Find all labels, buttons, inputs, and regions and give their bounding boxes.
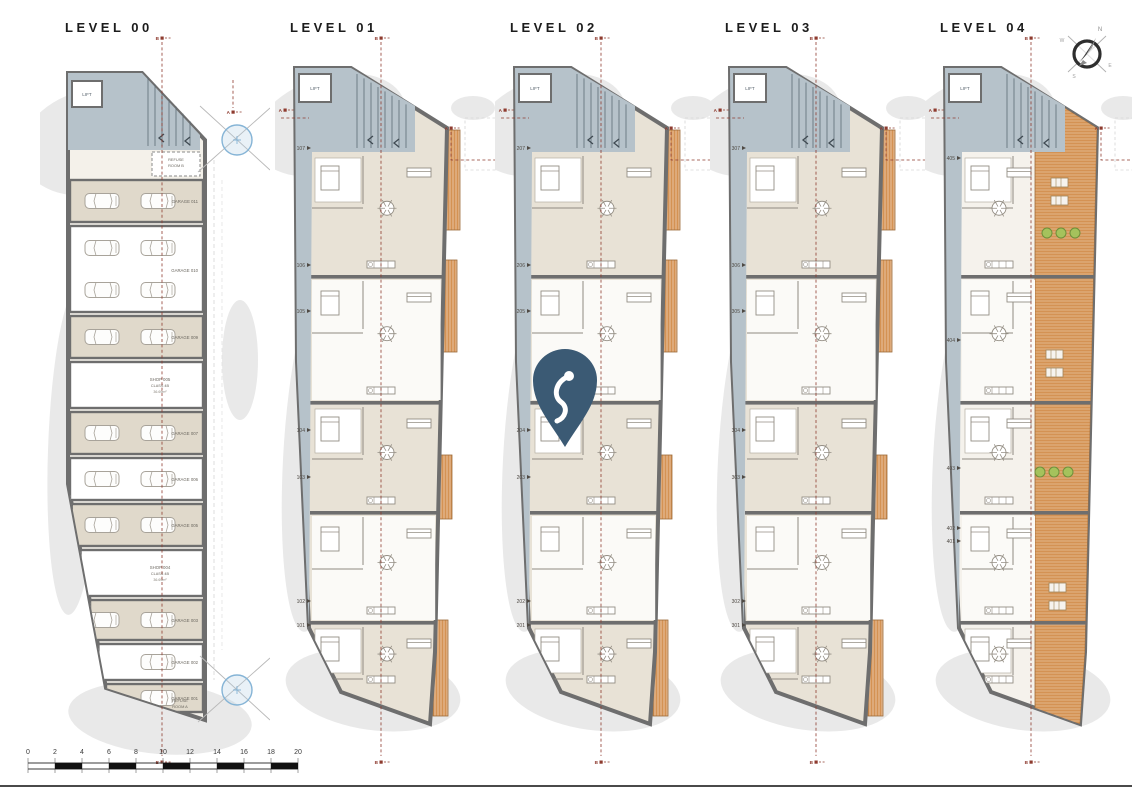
survey-point-icon	[198, 106, 270, 172]
shop-class-label: CLASS 4B	[151, 572, 170, 576]
unit-label: 401	[947, 539, 956, 545]
car-icon	[141, 426, 175, 441]
section-line	[1101, 132, 1132, 160]
garage-label: GARAGE 002	[171, 660, 198, 665]
site-shading	[671, 96, 715, 120]
bed	[971, 637, 989, 661]
level-plan-1: LIFT107106105104103102101BBAA	[275, 30, 505, 785]
compass-icon: N E S W	[1050, 14, 1124, 88]
kitchen-counter	[985, 387, 1013, 394]
section-marker-b: B	[1025, 36, 1041, 41]
car-icon	[141, 241, 175, 256]
plant-icon	[1070, 228, 1080, 238]
section-marker-b-label: B	[156, 36, 160, 41]
sun-lounger	[1051, 196, 1068, 205]
lift-label: LIFT	[745, 86, 755, 91]
bed	[321, 637, 339, 661]
unit-label: 107	[297, 146, 306, 152]
bed	[756, 637, 774, 661]
unit-divider-wall	[745, 275, 879, 279]
car-icon	[141, 655, 175, 670]
sheet-border	[0, 785, 1132, 787]
kitchen-counter	[985, 261, 1013, 268]
site-shading	[886, 96, 930, 120]
sofa	[1007, 529, 1031, 538]
scale-tick-label: 20	[294, 749, 302, 756]
unit-label: 302	[732, 599, 741, 605]
compass-letter-n: N	[1098, 27, 1102, 33]
car-icon	[85, 241, 119, 256]
sofa	[627, 168, 651, 177]
bed	[756, 291, 774, 315]
car-icon	[85, 194, 119, 209]
scale-segment	[55, 763, 82, 769]
sofa	[1007, 168, 1031, 177]
section-marker-b: B	[375, 760, 391, 765]
garage-label: GARAGE 010	[171, 268, 198, 273]
scale-tick-label: 0	[26, 749, 30, 756]
unit-label: 204	[517, 428, 526, 434]
plant-icon	[1042, 228, 1052, 238]
garage-row	[70, 362, 203, 408]
compass-ring	[1074, 41, 1100, 67]
sofa	[627, 293, 651, 302]
sofa	[407, 419, 431, 428]
bed	[541, 291, 559, 315]
sofa	[627, 419, 651, 428]
section-marker-b-label: B	[1025, 760, 1029, 765]
compass-letter-w: W	[1060, 38, 1065, 44]
garage-label: GARAGE 007	[171, 431, 198, 436]
sun-lounger	[1051, 178, 1068, 187]
plant-icon	[1056, 228, 1066, 238]
bed	[756, 527, 774, 551]
garage-label: GARAGE 005	[171, 523, 198, 528]
unit-label: 102	[297, 599, 306, 605]
section-marker-b-label: B	[375, 36, 379, 41]
sofa	[1007, 293, 1031, 302]
lift-label: LIFT	[82, 92, 92, 97]
unit-label: 103	[297, 475, 306, 481]
scale-tick-label: 18	[267, 749, 275, 756]
section-marker-b-label: B	[810, 36, 814, 41]
plant-icon	[1049, 467, 1059, 477]
unit-label: 304	[732, 428, 741, 434]
kitchen-counter	[985, 607, 1013, 614]
site-shading	[451, 96, 495, 120]
unit-label: 202	[517, 599, 526, 605]
scale-bar: 02468101214161820	[18, 742, 320, 788]
unit-label: 306	[732, 263, 741, 269]
refuse-room-a-label: REFUSE	[172, 698, 188, 703]
car-icon	[141, 283, 175, 298]
compass-letter-s: S	[1072, 74, 1076, 80]
sofa	[842, 293, 866, 302]
car-icon	[85, 330, 119, 345]
lift-label: LIFT	[310, 86, 320, 91]
unit-divider-wall	[530, 275, 664, 279]
unit-divider-wall	[745, 511, 873, 515]
bed	[321, 527, 339, 551]
plant-icon	[1035, 467, 1045, 477]
sofa	[407, 639, 431, 648]
kitchen-counter	[985, 676, 1013, 683]
garage-label: GARAGE 011	[172, 199, 199, 204]
level-plan-2: LIFT207206205204203202201BBAA	[495, 30, 725, 785]
scale-tick-label: 8	[134, 749, 138, 756]
compass-letter-e: E	[1108, 63, 1112, 69]
bed	[971, 527, 989, 551]
unit-label: 203	[517, 475, 526, 481]
section-marker-b-label: B	[595, 760, 599, 765]
unit-label: 405	[947, 156, 956, 162]
section-marker-b: B	[810, 760, 826, 765]
bed	[971, 291, 989, 315]
bed	[321, 291, 339, 315]
unit-divider-wall	[310, 275, 444, 279]
garage-label: GARAGE 006	[171, 477, 198, 482]
site-shading	[1101, 96, 1132, 120]
section-marker-a: A	[1095, 126, 1111, 131]
unit-label: 403	[947, 466, 956, 472]
unit-label: 206	[517, 263, 526, 269]
car-icon	[85, 518, 119, 533]
bed	[756, 417, 774, 441]
unit-label: 205	[517, 309, 526, 315]
sun-lounger	[1046, 350, 1063, 359]
shop-label: SHOP 005	[150, 377, 171, 382]
floorplan-sheet: LIFTREFUSEROOM BGARAGE 011GARAGE 010GARA…	[0, 0, 1132, 800]
sun-lounger	[1049, 601, 1066, 610]
unit-label: 303	[732, 475, 741, 481]
unit-label: 201	[517, 623, 526, 629]
section-marker-b-label: B	[1025, 36, 1029, 41]
sun-lounger	[1049, 583, 1066, 592]
section-marker-b: B	[375, 36, 391, 41]
unit-label: 404	[947, 338, 956, 344]
sun-lounger	[1046, 368, 1063, 377]
garage-label: GARAGE 009	[171, 335, 198, 340]
bed	[756, 166, 774, 190]
unit-label: 207	[517, 146, 526, 152]
sofa	[1007, 639, 1031, 648]
scale-tick-label: 6	[107, 749, 111, 756]
sofa	[842, 419, 866, 428]
section-marker-a-label: A	[227, 110, 231, 115]
unit-label: 305	[732, 309, 741, 315]
unit-divider-wall	[960, 275, 1097, 279]
unit-divider-wall	[310, 621, 436, 625]
car-icon	[141, 194, 175, 209]
unit-divider-wall	[310, 401, 441, 405]
scale-tick-label: 2	[53, 749, 57, 756]
scale-tick-label: 14	[213, 749, 221, 756]
bed	[971, 166, 989, 190]
section-marker-a: A	[227, 110, 243, 115]
car-icon	[85, 426, 119, 441]
section-marker-b: B	[156, 36, 172, 41]
car-icon	[85, 472, 119, 487]
sofa	[842, 168, 866, 177]
garage-rows: GARAGE 011GARAGE 010GARAGE 009SHOP 005CL…	[70, 180, 203, 712]
scale-tick-label: 10	[159, 749, 167, 756]
bed	[541, 166, 559, 190]
scale-tick-label: 4	[80, 749, 84, 756]
garage-label: GARAGE 003	[171, 618, 198, 623]
unit-divider-wall	[530, 621, 656, 625]
bed	[321, 417, 339, 441]
section-marker-b: B	[810, 36, 826, 41]
unit-divider-wall	[530, 511, 658, 515]
sofa	[407, 168, 431, 177]
bed	[321, 166, 339, 190]
scale-segment	[217, 763, 244, 769]
scale-tick-label: 12	[186, 749, 194, 756]
section-marker-b: B	[1025, 760, 1041, 765]
bed	[541, 637, 559, 661]
lift-label: LIFT	[530, 86, 540, 91]
sofa	[842, 639, 866, 648]
sofa	[407, 529, 431, 538]
scale-segment	[271, 763, 298, 769]
site-shading	[222, 300, 258, 420]
plant-icon	[1063, 467, 1073, 477]
shop-class-label: CLASS 4B	[151, 384, 170, 388]
unit-divider-wall	[745, 401, 876, 405]
car-icon	[141, 518, 175, 533]
projection-line	[1115, 118, 1132, 170]
level-plan-0: LIFTREFUSEROOM BGARAGE 011GARAGE 010GARA…	[40, 30, 270, 785]
lift-label: LIFT	[960, 86, 970, 91]
refuse-room-a-label: ROOM A	[172, 704, 188, 709]
unit-label: 101	[297, 623, 306, 629]
unit-label: 402	[947, 526, 956, 532]
unit-divider-wall	[745, 621, 871, 625]
sofa	[627, 529, 651, 538]
level-title: LEVEL 00	[65, 20, 153, 35]
shop-label: SHOP 004	[150, 565, 171, 570]
refuse-room-b-label: REFUSE	[168, 157, 184, 162]
car-icon	[141, 330, 175, 345]
level-title: LEVEL 01	[290, 20, 378, 35]
shop-area-label: 36.69m²	[153, 578, 167, 582]
level-title: LEVEL 02	[510, 20, 598, 35]
car-icon	[141, 613, 175, 628]
section-marker-b: B	[595, 760, 611, 765]
car-icon	[141, 472, 175, 487]
unit-label: 106	[297, 263, 306, 269]
section-marker-b-label: B	[810, 760, 814, 765]
scale-tick-label: 16	[240, 749, 248, 756]
unit-label: 105	[297, 309, 306, 315]
unit-divider-wall	[960, 511, 1097, 515]
unit-label: 104	[297, 428, 306, 434]
unit-divider-wall	[960, 401, 1097, 405]
car-icon	[85, 613, 119, 628]
unit-label: 301	[732, 623, 741, 629]
bed	[541, 527, 559, 551]
garage-row	[81, 550, 203, 596]
shop-area-label: 36.69m²	[153, 390, 167, 394]
section-marker-b: B	[595, 36, 611, 41]
sofa	[1007, 419, 1031, 428]
sofa	[842, 529, 866, 538]
refuse-room-b-label: ROOM B	[168, 163, 184, 168]
scale-segment	[109, 763, 136, 769]
scale-segment	[163, 763, 190, 769]
bed	[971, 417, 989, 441]
level-title: LEVEL 04	[940, 20, 1028, 35]
kitchen-counter	[985, 497, 1013, 504]
unit-label: 307	[732, 146, 741, 152]
section-marker-b-label: B	[595, 36, 599, 41]
level-title: LEVEL 03	[725, 20, 813, 35]
section-marker-b-label: B	[375, 760, 379, 765]
level-plan-4: LIFT405404403402401BBAA	[925, 30, 1132, 785]
level-plan-3: LIFT307306305304303302301BBAA	[710, 30, 940, 785]
sofa	[407, 293, 431, 302]
unit-divider-wall	[310, 511, 438, 515]
unit-divider-wall	[960, 621, 1097, 625]
sofa	[627, 639, 651, 648]
car-icon	[85, 283, 119, 298]
